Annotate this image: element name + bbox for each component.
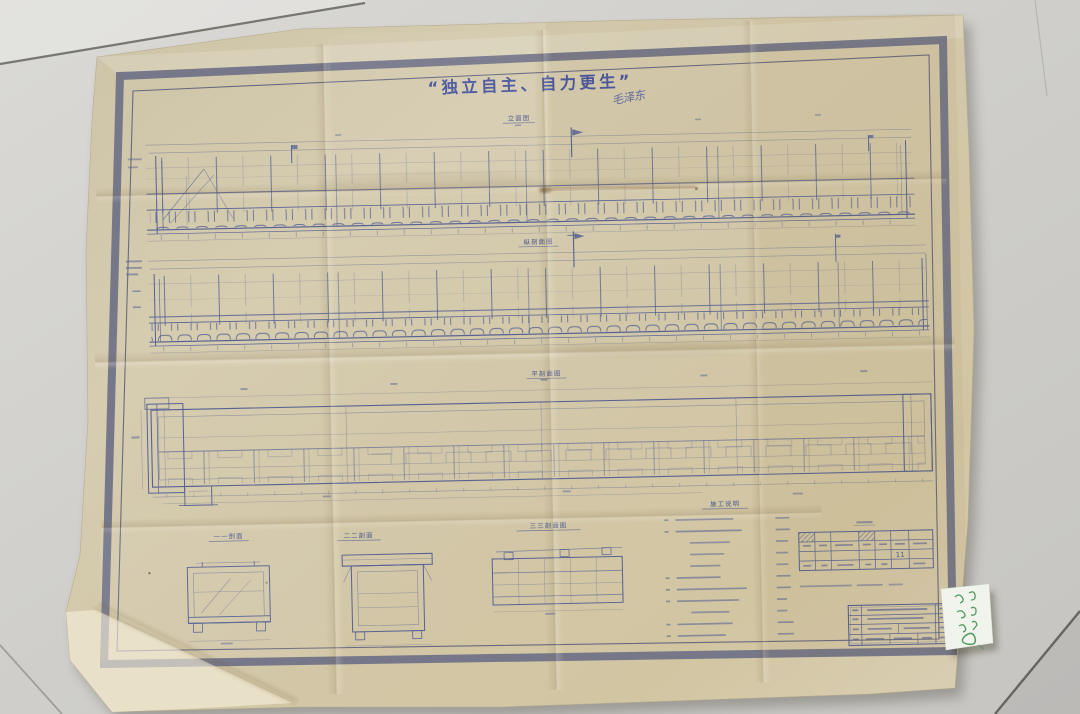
photo-of-blueprint: “独立自主、自力更生” 毛泽东 立面图 (0, 0, 1080, 714)
detail-2-label: 二二剖面 (344, 531, 374, 541)
blueprint-photo: “独立自主、自力更生” 毛泽东 立面图 (0, 0, 1080, 714)
sticky-note (941, 584, 998, 657)
sticky-note-card (941, 584, 993, 650)
